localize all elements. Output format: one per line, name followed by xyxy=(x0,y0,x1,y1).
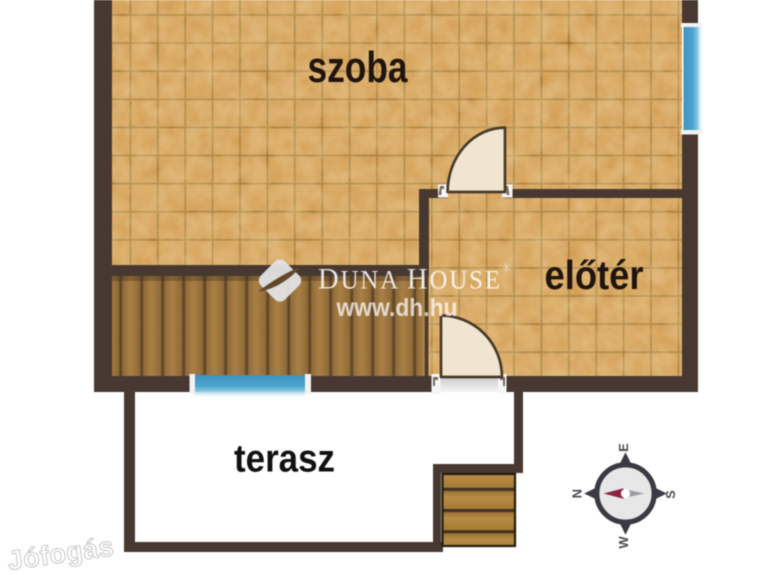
svg-text:DUNA HOUSE: DUNA HOUSE xyxy=(318,263,502,296)
svg-text:N: N xyxy=(570,489,585,498)
svg-text:Jófogás: Jófogás xyxy=(6,531,116,575)
svg-text:®: ® xyxy=(503,263,511,274)
svg-text:E: E xyxy=(616,443,631,452)
svg-text:S: S xyxy=(663,490,678,499)
svg-text:terasz: terasz xyxy=(234,438,335,481)
svg-text:szoba: szoba xyxy=(308,43,408,92)
svg-text:előtér: előtér xyxy=(545,252,644,298)
svg-text:W: W xyxy=(616,536,631,549)
svg-text:www.dh.hu: www.dh.hu xyxy=(336,294,458,322)
